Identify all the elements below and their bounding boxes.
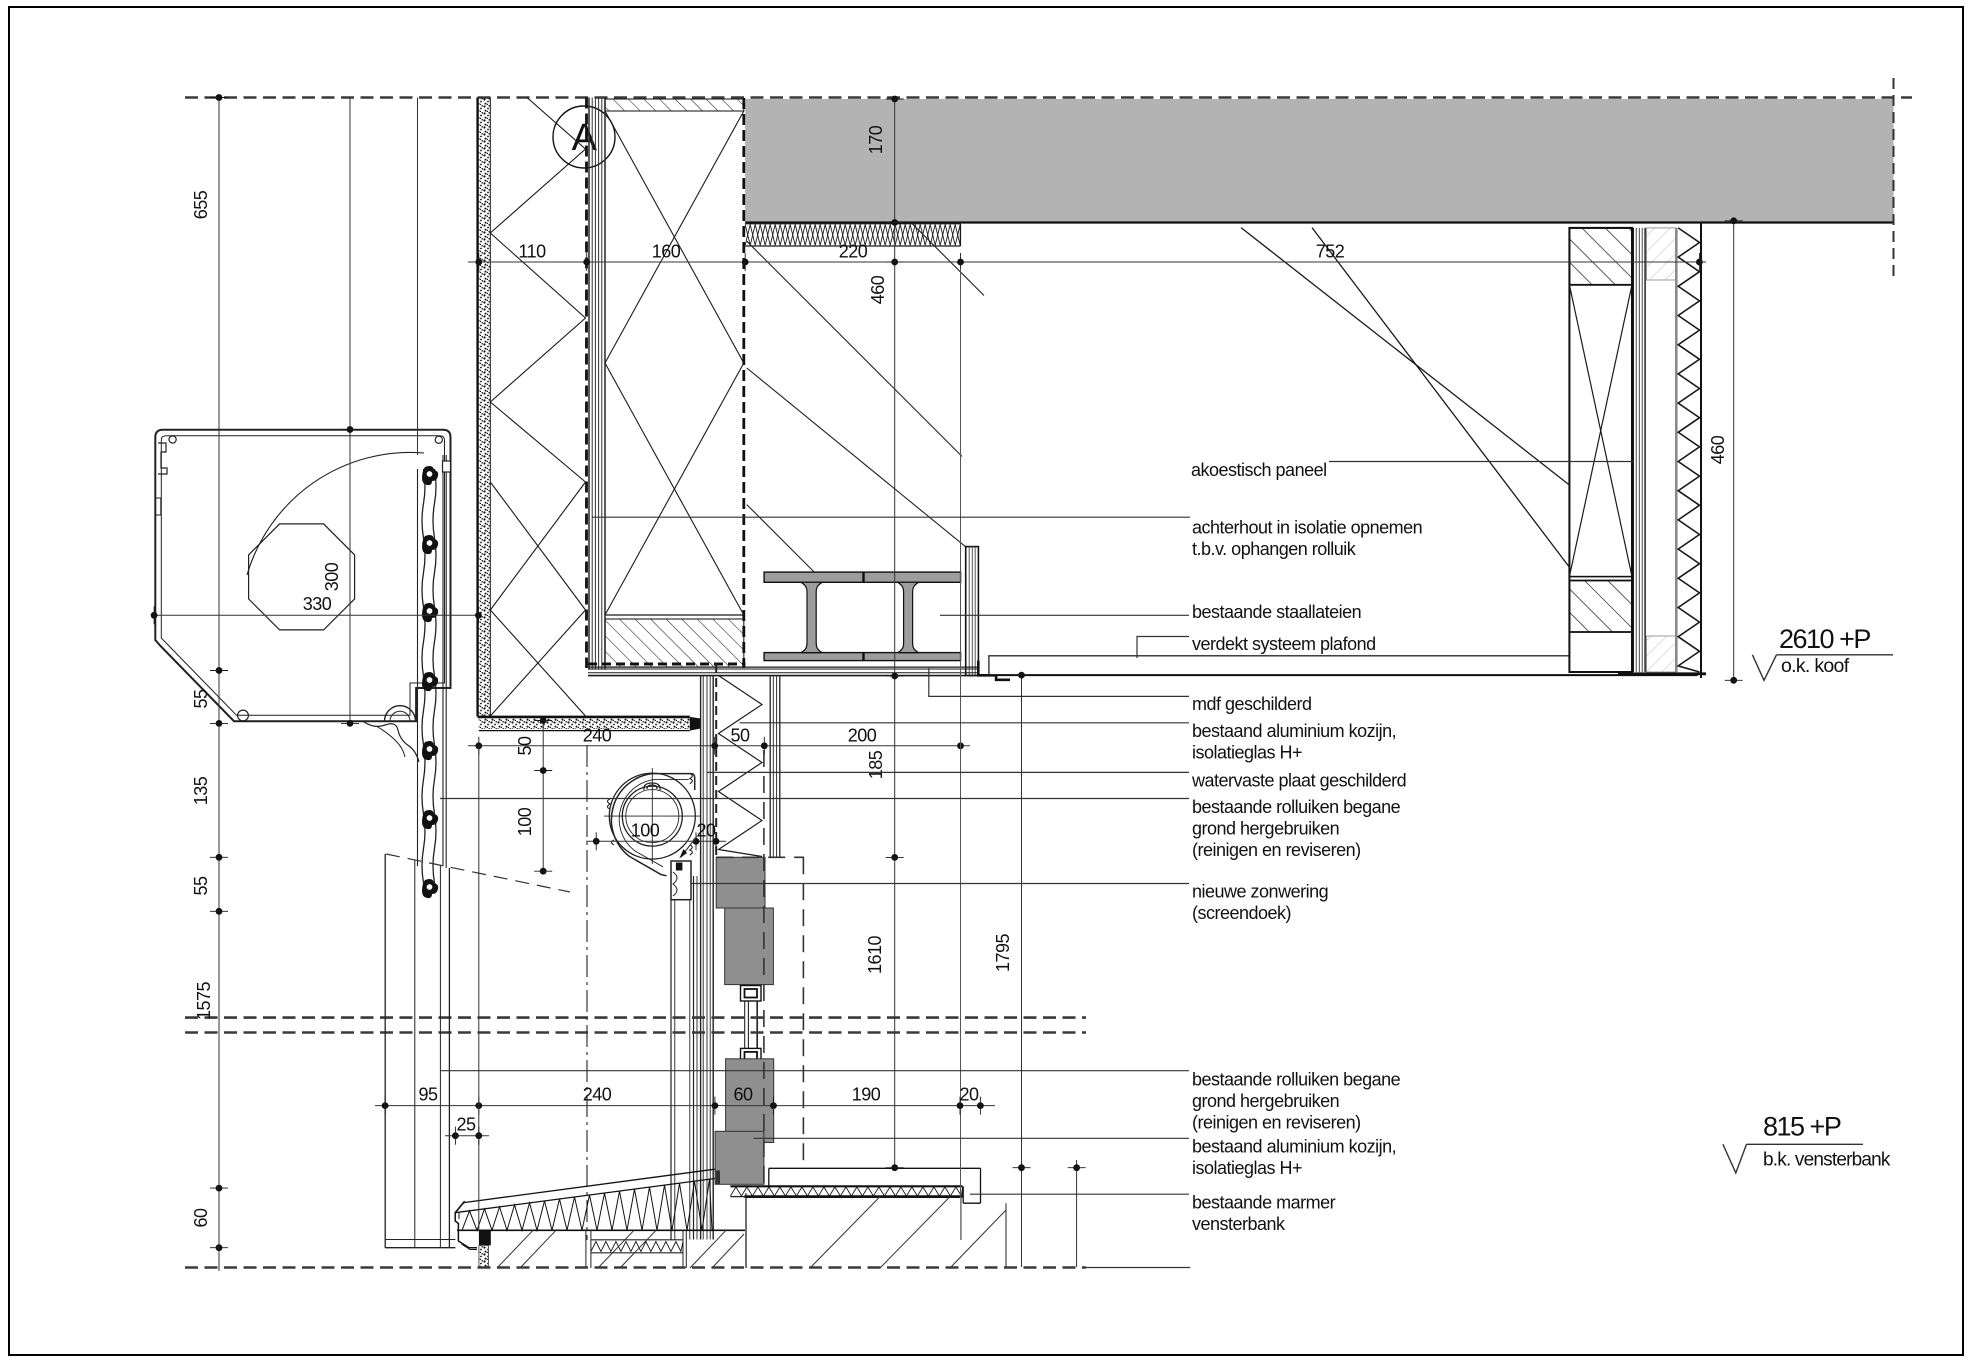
svg-text:655: 655 [191, 190, 211, 219]
svg-text:isolatieglas H+: isolatieglas H+ [1192, 1158, 1302, 1178]
svg-text:240: 240 [583, 726, 612, 746]
svg-text:bestaande staallateien: bestaande staallateien [1192, 602, 1361, 622]
svg-text:A: A [572, 117, 598, 159]
svg-text:nieuwe zonwering: nieuwe zonwering [1192, 882, 1328, 902]
svg-text:240: 240 [583, 1085, 612, 1105]
svg-text:achterhout in isolatie opnemen: achterhout in isolatie opnemen [1192, 518, 1422, 538]
svg-text:bestaande marmer: bestaande marmer [1192, 1193, 1336, 1213]
svg-text:200: 200 [848, 726, 877, 746]
svg-text:135: 135 [191, 776, 211, 805]
svg-text:grond hergebruiken: grond hergebruiken [1192, 1091, 1339, 1111]
svg-text:verdekt systeem plafond: verdekt systeem plafond [1192, 634, 1376, 654]
svg-text:1795: 1795 [993, 933, 1013, 972]
svg-text:55: 55 [191, 689, 211, 709]
svg-text:95: 95 [418, 1085, 438, 1105]
svg-text:60: 60 [733, 1085, 753, 1105]
svg-text:55: 55 [191, 876, 211, 896]
svg-text:bestaand aluminium kozijn,: bestaand aluminium kozijn, [1192, 721, 1396, 741]
svg-text:1610: 1610 [865, 935, 885, 974]
svg-text:185: 185 [866, 750, 886, 779]
svg-text:(screendoek): (screendoek) [1192, 903, 1291, 923]
svg-text:160: 160 [652, 242, 681, 262]
svg-text:bestaande rolluiken begane: bestaande rolluiken begane [1192, 1070, 1401, 1090]
svg-text:110: 110 [518, 242, 546, 262]
svg-text:mdf geschilderd: mdf geschilderd [1192, 694, 1312, 714]
svg-text:190: 190 [852, 1085, 881, 1105]
svg-text:grond hergebruiken: grond hergebruiken [1192, 819, 1339, 839]
svg-text:815 +P: 815 +P [1763, 1112, 1841, 1142]
svg-text:b.k. vensterbank: b.k. vensterbank [1763, 1150, 1891, 1171]
svg-text:60: 60 [191, 1208, 211, 1228]
svg-text:t.b.v. ophangen rolluik: t.b.v. ophangen rolluik [1192, 539, 1357, 559]
svg-text:2610 +P: 2610 +P [1779, 624, 1870, 654]
svg-text:(reinigen en reviseren): (reinigen en reviseren) [1192, 840, 1361, 860]
svg-text:460: 460 [868, 275, 888, 304]
svg-text:25: 25 [456, 1115, 476, 1135]
svg-text:akoestisch paneel: akoestisch paneel [1191, 460, 1327, 480]
svg-text:100: 100 [631, 821, 660, 841]
svg-text:20: 20 [959, 1085, 979, 1105]
svg-text:isolatieglas H+: isolatieglas H+ [1192, 743, 1302, 763]
svg-text:bestaand aluminium kozijn,: bestaand aluminium kozijn, [1192, 1137, 1396, 1157]
svg-text:460: 460 [1708, 435, 1728, 464]
svg-text:170: 170 [866, 125, 886, 154]
svg-text:50: 50 [730, 726, 750, 746]
svg-text:100: 100 [515, 807, 535, 836]
svg-text:330: 330 [303, 594, 332, 614]
svg-text:220: 220 [839, 242, 868, 262]
svg-text:50: 50 [515, 736, 535, 756]
svg-text:20: 20 [696, 821, 716, 841]
svg-text:(reinigen en reviseren): (reinigen en reviseren) [1192, 1113, 1361, 1133]
svg-text:o.k. koof: o.k. koof [1781, 655, 1850, 677]
svg-text:300: 300 [322, 562, 342, 591]
svg-text:1575: 1575 [194, 981, 214, 1020]
svg-text:bestaande rolluiken begane: bestaande rolluiken begane [1192, 797, 1401, 817]
svg-text:vensterbank: vensterbank [1192, 1214, 1286, 1234]
svg-text:watervaste plaat geschilderd: watervaste plaat geschilderd [1191, 771, 1406, 791]
svg-text:752: 752 [1316, 242, 1345, 262]
